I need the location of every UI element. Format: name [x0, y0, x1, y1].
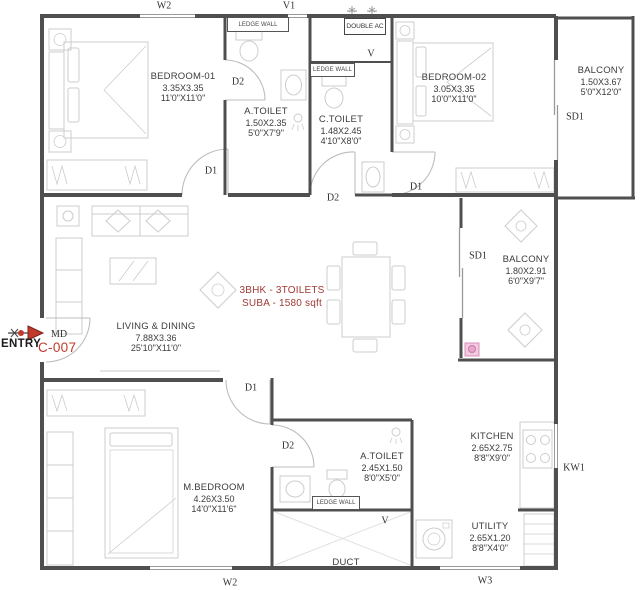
ac-icon: [347, 6, 377, 14]
stove-icon: [523, 430, 552, 468]
window-marker: [140, 15, 195, 18]
window-marker: [555, 424, 558, 468]
door-code-d1: D1: [205, 166, 217, 177]
duct-hatch: [275, 512, 410, 565]
utility-sink-icon: [524, 514, 554, 566]
door-code-d2: D2: [232, 77, 244, 88]
wardrobe-icon: [47, 390, 145, 416]
window-code-w2: W2: [223, 578, 237, 589]
wardrobe-icon: [47, 160, 147, 190]
wash-area-icon: [465, 343, 479, 356]
window-marker: [150, 567, 232, 570]
floor-plan: BEDROOM-01 3.35X3.35 11'0"X11'0" A.TOILE…: [0, 0, 640, 590]
coffee-table-icon: [110, 258, 156, 284]
plan-area-text: SUBA - 1580 sqft: [222, 298, 342, 311]
washing-machine-icon: [416, 520, 452, 558]
kitchen-counter-icon: [520, 422, 554, 508]
door-code-d1: D1: [245, 383, 257, 394]
window-marker: [440, 567, 520, 570]
dresser-icon: [47, 432, 73, 565]
bed-icon: [105, 428, 178, 558]
shower-icon: [292, 114, 304, 131]
sofa-icon: [56, 206, 188, 334]
washbasin-icon: [362, 162, 384, 192]
entry-label: ENTRY: [1, 338, 41, 350]
window-code-w3: W3: [478, 576, 492, 587]
window-code-w2: W2: [157, 1, 171, 12]
wc-icon: [322, 76, 346, 108]
plant-icon: [505, 210, 542, 347]
wardrobe-icon: [456, 168, 554, 192]
sliding-door-marker: [460, 228, 463, 318]
shower-icon: [390, 428, 402, 444]
window-marker: [288, 15, 307, 18]
wc-icon: [327, 470, 347, 498]
door-arcs: [46, 60, 435, 467]
ventilator-code-v: V: [381, 516, 388, 527]
door-code-d2: D2: [327, 193, 339, 204]
washbasin-icon: [280, 476, 310, 502]
plan-type-text: 3BHK - 3TOILETS: [222, 285, 342, 298]
sliding-door-marker: [555, 60, 558, 160]
door-arc: [310, 152, 355, 195]
ledge-wall-box: LEDGE WALL: [310, 63, 355, 77]
ledge-wall-box: LEDGE WALL: [312, 496, 360, 510]
unit-number: C-007: [38, 340, 76, 355]
window-code-kw1: KW1: [563, 463, 585, 474]
sliding-door-code-sd1: SD1: [469, 251, 487, 262]
door-code-d2: D2: [282, 441, 294, 452]
tv-unit-icon: [57, 206, 79, 226]
door-code-d1: D1: [410, 182, 422, 193]
plan-note: 3BHK - 3TOILETS SUBA - 1580 sqft: [222, 285, 342, 310]
wc-icon: [236, 30, 262, 61]
sliding-door-code-sd1: SD1: [566, 112, 584, 123]
main-door-label: MD: [51, 329, 67, 340]
double-ac-box: DOUBLE AC: [344, 18, 386, 35]
ledge-wall-box: LEDGE WALL: [227, 17, 289, 32]
ventilator-code-v: V: [367, 49, 374, 60]
washbasin-icon: [281, 70, 306, 100]
bed-icon: [396, 22, 493, 143]
ventilator-code-v1: V1: [283, 1, 295, 12]
bed-icon: [49, 29, 148, 152]
